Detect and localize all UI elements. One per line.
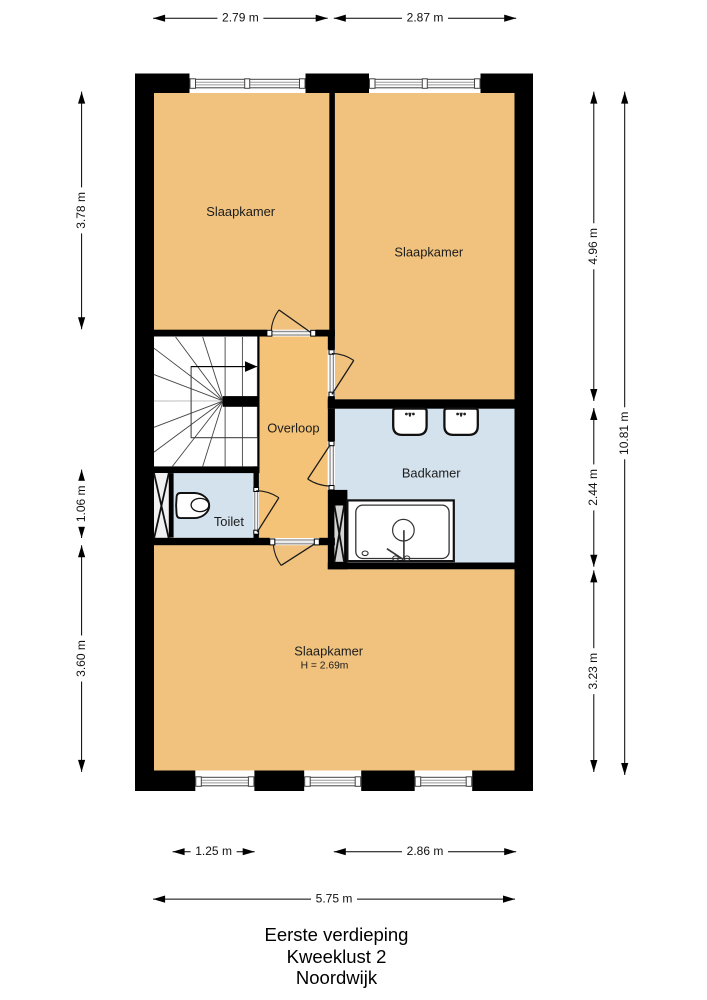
- svg-text:2.79 m: 2.79 m: [222, 10, 259, 24]
- svg-text:2.44 m: 2.44 m: [586, 469, 600, 506]
- svg-text:3.78 m: 3.78 m: [74, 192, 88, 229]
- svg-text:Slaapkamer: Slaapkamer: [294, 644, 363, 659]
- svg-text:4.96 m: 4.96 m: [586, 228, 600, 265]
- svg-text:1.06 m: 1.06 m: [74, 485, 88, 522]
- svg-text:Eerste verdieping: Eerste verdieping: [265, 924, 409, 945]
- svg-text:2.86 m: 2.86 m: [407, 844, 444, 858]
- svg-text:Badkamer: Badkamer: [402, 466, 461, 481]
- svg-text:Kweeklust 2: Kweeklust 2: [287, 946, 387, 967]
- svg-text:10.81 m: 10.81 m: [617, 412, 631, 455]
- svg-text:3.23 m: 3.23 m: [586, 653, 600, 690]
- svg-text:Toilet: Toilet: [214, 514, 245, 529]
- svg-text:Overloop: Overloop: [267, 421, 319, 436]
- svg-text:5.75 m: 5.75 m: [316, 891, 353, 905]
- svg-text:3.60 m: 3.60 m: [74, 640, 88, 677]
- svg-text:Slaapkamer: Slaapkamer: [394, 244, 463, 259]
- svg-text:1.25 m: 1.25 m: [195, 844, 232, 858]
- svg-text:2.87 m: 2.87 m: [407, 10, 444, 24]
- svg-text:Slaapkamer: Slaapkamer: [206, 204, 275, 219]
- svg-text:H = 2.69m: H = 2.69m: [301, 661, 349, 672]
- svg-text:Noordwijk: Noordwijk: [296, 967, 378, 988]
